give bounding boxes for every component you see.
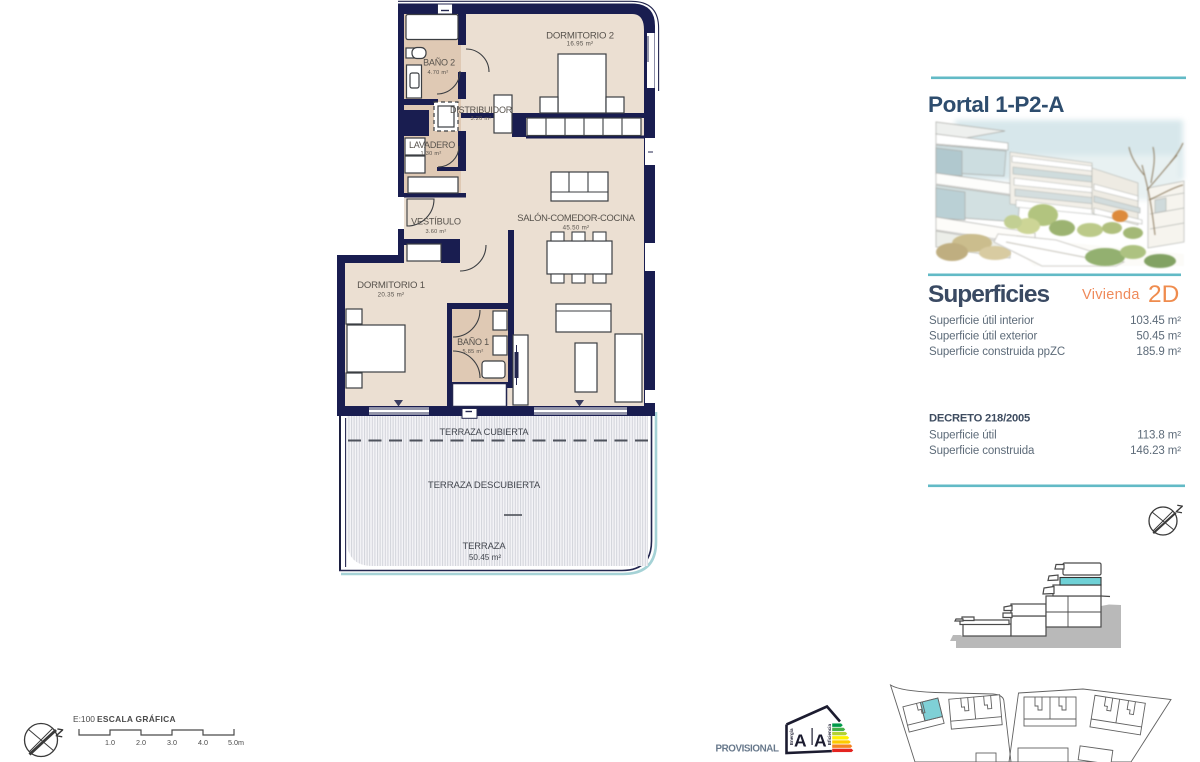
svg-text:20.35 m²: 20.35 m² (378, 292, 405, 299)
svg-text:146.23 m²: 146.23 m² (1130, 445, 1181, 457)
svg-text:185.9 m²: 185.9 m² (1136, 346, 1181, 358)
svg-text:A: A (794, 731, 807, 751)
svg-text:5.85 m²: 5.85 m² (462, 349, 483, 355)
svg-text:Energía: Energía (789, 728, 794, 745)
svg-text:Superficie útil: Superficie útil (929, 430, 997, 442)
svg-text:103.45 m²: 103.45 m² (1130, 315, 1181, 327)
svg-text:ESCALA GRÁFICA: ESCALA GRÁFICA (97, 713, 176, 724)
svg-text:3.0: 3.0 (167, 738, 177, 747)
svg-text:16.95 m²: 16.95 m² (567, 41, 594, 48)
svg-text:Eficiencia: Eficiencia (827, 723, 832, 745)
svg-text:2.0: 2.0 (136, 738, 146, 747)
svg-text:VESTÍBULO: VESTÍBULO (411, 217, 461, 227)
svg-text:A: A (814, 731, 827, 751)
svg-text:3.60 m²: 3.60 m² (425, 229, 446, 235)
svg-text:50.45 m²: 50.45 m² (469, 553, 502, 562)
svg-text:3.20 m²: 3.20 m² (470, 116, 491, 122)
svg-text:45.50 m²: 45.50 m² (563, 225, 590, 232)
svg-text:4.0: 4.0 (198, 738, 208, 747)
svg-text:Superficie útil exterior: Superficie útil exterior (929, 331, 1037, 343)
svg-text:113.8 m²: 113.8 m² (1137, 430, 1181, 442)
svg-text:SALÓN-COMEDOR-COCINA: SALÓN-COMEDOR-COCINA (517, 212, 635, 223)
svg-text:Superficie construida: Superficie construida (929, 445, 1035, 457)
svg-text:DISTRIBUIDOR: DISTRIBUIDOR (450, 105, 513, 115)
svg-text:TERRAZA DESCUBIERTA: TERRAZA DESCUBIERTA (428, 480, 541, 491)
svg-text:TERRAZA CUBIERTA: TERRAZA CUBIERTA (440, 427, 530, 437)
svg-text:1.30 m²: 1.30 m² (420, 151, 441, 157)
svg-text:TERRAZA: TERRAZA (462, 540, 506, 551)
svg-text:Superficie construida ppZC: Superficie construida ppZC (929, 346, 1065, 358)
svg-text:Portal 1-P2-A: Portal 1-P2-A (928, 92, 1064, 117)
svg-text:50.45 m²: 50.45 m² (1136, 331, 1181, 343)
svg-text:4.70 m²: 4.70 m² (427, 70, 448, 76)
svg-text:1.0: 1.0 (105, 738, 115, 747)
svg-text:LAVADERO: LAVADERO (409, 140, 455, 150)
svg-text:DECRETO 218/2005: DECRETO 218/2005 (929, 413, 1030, 425)
svg-text:Superficie útil interior: Superficie útil interior (929, 315, 1034, 327)
svg-text:5.0m: 5.0m (228, 738, 244, 747)
svg-text:Superficies: Superficies (928, 281, 1049, 308)
svg-text:PROVISIONAL: PROVISIONAL (715, 744, 779, 755)
svg-text:BAÑO 1: BAÑO 1 (457, 337, 489, 347)
svg-text:2D: 2D (1148, 281, 1179, 308)
svg-text:E:100: E:100 (73, 714, 95, 724)
svg-text:Vivienda: Vivienda (1082, 287, 1140, 303)
svg-text:DORMITORIO 1: DORMITORIO 1 (357, 280, 425, 291)
svg-text:BAÑO 2: BAÑO 2 (423, 58, 455, 68)
